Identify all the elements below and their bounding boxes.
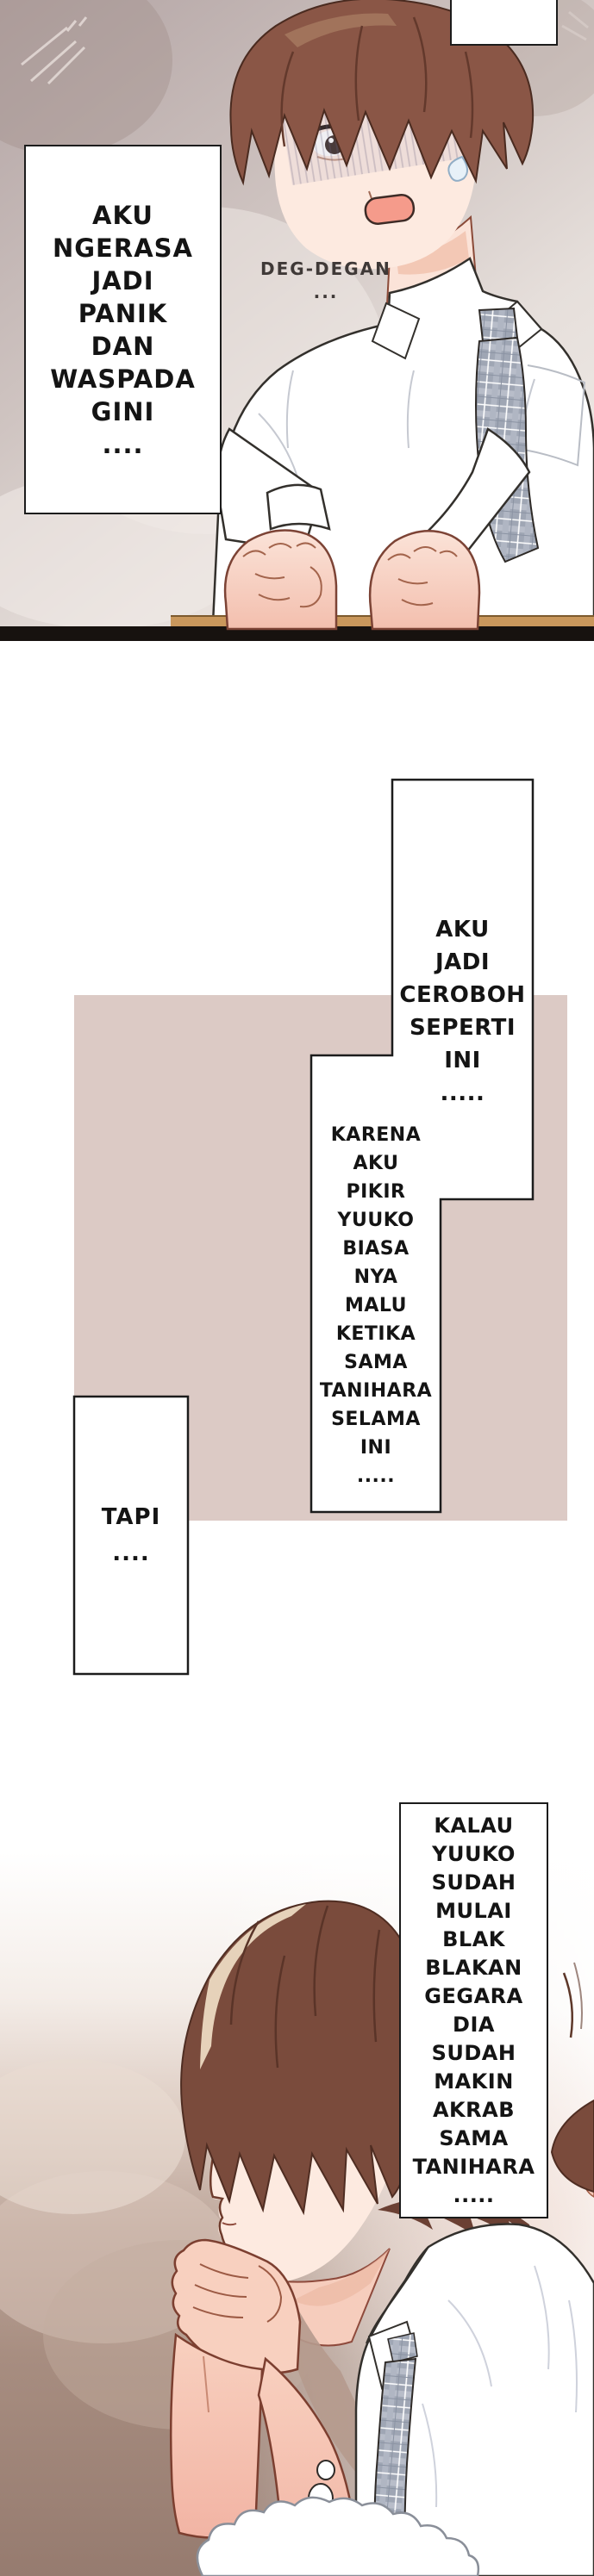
speech-bubble-kalau: KALAU YUUKO SUDAH MULAI BLAK BLAKAN GEGA…	[399, 1802, 548, 2218]
tie-knot	[479, 308, 517, 341]
bubble-oval-small	[317, 2461, 335, 2480]
speech-bubble-karena-text: KARENA AKU PIKIR YUUKO BIASA NYA MALU KE…	[311, 1055, 441, 1512]
speech-bubble-corner-empty	[450, 0, 558, 46]
tie-knot-bottom	[388, 2333, 417, 2362]
cuff-left	[267, 485, 329, 529]
speech-bubble-panik: AKU NGERASA JADI PANIK DAN WASPADA GINI …	[24, 145, 222, 514]
manga-page: AKU NGERASA JADI PANIK DAN WASPADA GINI …	[0, 0, 594, 2576]
sfx-deg-degan: DEG-DEGAN ...	[256, 258, 396, 304]
open-mouth	[364, 194, 415, 226]
speech-bubble-tapi-text: TAPI ....	[74, 1397, 188, 1674]
